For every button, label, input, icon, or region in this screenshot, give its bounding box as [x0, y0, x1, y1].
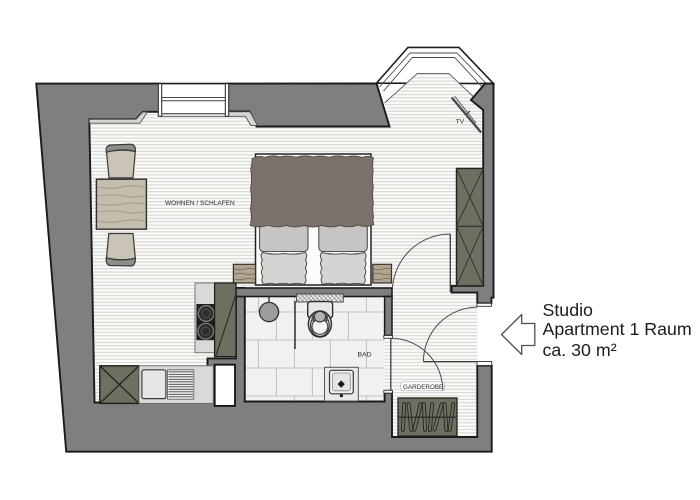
svg-text:BAD: BAD: [358, 352, 372, 359]
svg-text:GARDEROBE: GARDEROBE: [403, 384, 443, 391]
svg-text:TV: TV: [456, 119, 465, 126]
svg-text:ca. 30 m²: ca. 30 m²: [543, 340, 617, 360]
svg-text:Apartment 1 Raum: Apartment 1 Raum: [543, 319, 692, 339]
svg-text:Studio: Studio: [543, 300, 594, 320]
svg-text:WOHNEN / SCHLAFEN: WOHNEN / SCHLAFEN: [165, 200, 235, 207]
